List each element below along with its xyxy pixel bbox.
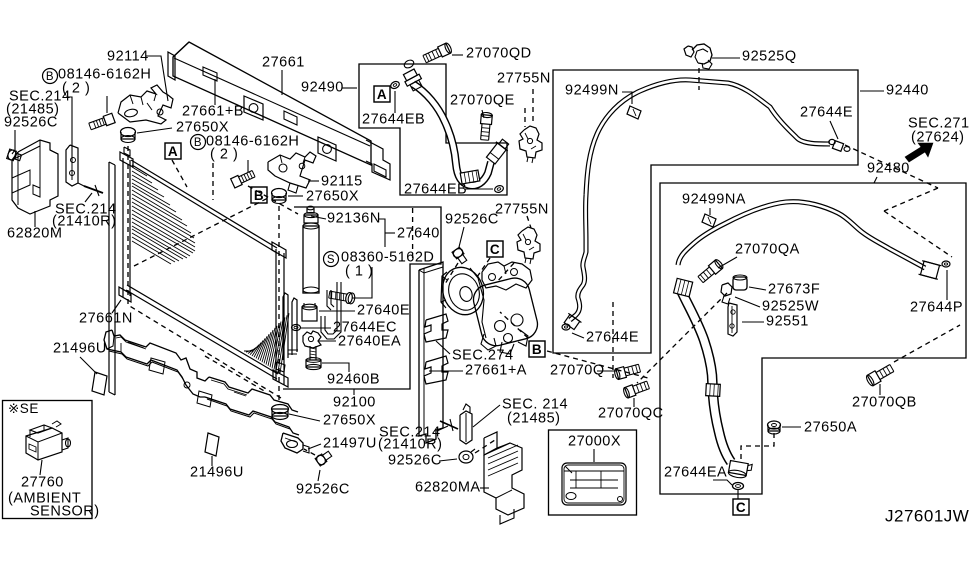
svg-text:(21485): (21485) — [507, 411, 560, 427]
svg-text:21496U: 21496U — [190, 465, 244, 481]
svg-text:( 1 ): ( 1 ) — [345, 264, 373, 280]
svg-text:92525Q: 92525Q — [742, 49, 797, 65]
svg-text:27070QB: 27070QB — [852, 395, 917, 411]
svg-text:92136N: 92136N — [327, 211, 381, 227]
svg-text:92525W: 92525W — [762, 299, 819, 315]
svg-text:92490: 92490 — [301, 80, 344, 96]
svg-text:27755N: 27755N — [497, 71, 551, 87]
svg-text:(21410R): (21410R) — [378, 437, 442, 453]
svg-text:27673F: 27673F — [768, 282, 820, 298]
svg-text:B: B — [194, 137, 202, 149]
svg-text:27070QC: 27070QC — [598, 406, 664, 422]
svg-text:92440: 92440 — [886, 83, 929, 99]
svg-text:27661N: 27661N — [79, 311, 133, 327]
svg-text:C: C — [490, 242, 500, 257]
svg-text:A: A — [377, 87, 387, 102]
svg-text:27000X: 27000X — [568, 434, 621, 450]
svg-text:27644E: 27644E — [800, 105, 853, 121]
svg-text:B: B — [254, 188, 264, 203]
svg-text:92480: 92480 — [867, 161, 910, 177]
svg-text:27661+A: 27661+A — [465, 363, 527, 379]
svg-text:27640: 27640 — [397, 226, 440, 242]
svg-text:S: S — [327, 254, 335, 266]
svg-text:27650X: 27650X — [323, 413, 376, 429]
svg-text:62820MA: 62820MA — [415, 480, 481, 496]
svg-text:27644EB: 27644EB — [404, 182, 467, 198]
svg-text:92460B: 92460B — [327, 372, 380, 388]
svg-text:SENSOR): SENSOR) — [30, 504, 100, 520]
svg-text:27661: 27661 — [262, 55, 305, 71]
svg-text:92526C: 92526C — [388, 453, 442, 469]
svg-text:※SE: ※SE — [8, 401, 39, 416]
svg-text:27640EA: 27640EA — [338, 334, 401, 350]
svg-text:92526C: 92526C — [445, 212, 499, 228]
svg-text:A: A — [168, 144, 178, 159]
svg-text:27070QE: 27070QE — [450, 93, 515, 109]
svg-text:27070QA: 27070QA — [735, 242, 800, 258]
svg-text:C: C — [736, 500, 746, 515]
svg-text:92526C: 92526C — [4, 115, 58, 131]
svg-text:21497U: 21497U — [323, 436, 377, 452]
svg-text:( 2 ): ( 2 ) — [210, 147, 238, 163]
svg-text:92115: 92115 — [321, 174, 363, 190]
svg-text:92114: 92114 — [107, 49, 149, 65]
svg-text:92499N: 92499N — [565, 83, 619, 99]
svg-text:92551: 92551 — [766, 314, 809, 330]
svg-text:27755N: 27755N — [495, 202, 549, 218]
svg-text:(27624): (27624) — [911, 130, 964, 146]
svg-text:27650A: 27650A — [804, 420, 857, 436]
svg-text:27650X: 27650X — [306, 189, 359, 205]
svg-text:27644EB: 27644EB — [362, 112, 425, 128]
svg-text:27640E: 27640E — [357, 303, 410, 319]
svg-text:92499NA: 92499NA — [682, 192, 746, 208]
svg-text:27070QD: 27070QD — [466, 46, 532, 62]
svg-text:(21410R): (21410R) — [52, 214, 116, 230]
svg-text:92100: 92100 — [333, 395, 376, 411]
svg-text:B: B — [532, 342, 542, 357]
svg-text:SEC.274: SEC.274 — [452, 348, 514, 364]
svg-text:27661+B: 27661+B — [182, 104, 244, 120]
svg-text:27644P: 27644P — [910, 300, 963, 316]
svg-text:27644EA: 27644EA — [664, 465, 727, 481]
svg-text:J27601JW: J27601JW — [885, 506, 969, 525]
svg-text:B: B — [46, 71, 54, 83]
svg-text:92526C: 92526C — [296, 482, 350, 498]
svg-text:27760: 27760 — [21, 475, 64, 491]
svg-text:27070Q: 27070Q — [550, 363, 605, 379]
svg-text:21496U: 21496U — [53, 341, 107, 357]
